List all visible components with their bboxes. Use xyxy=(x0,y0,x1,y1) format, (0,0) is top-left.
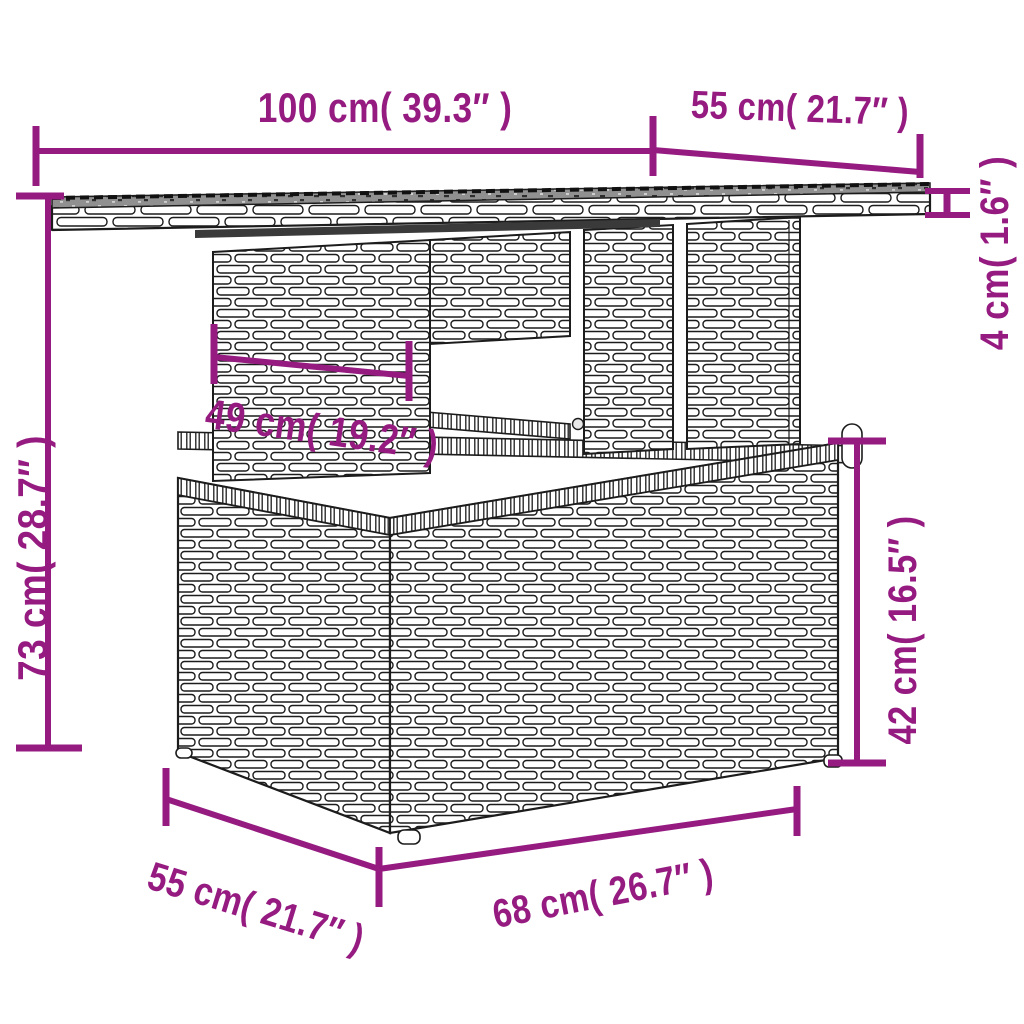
base-front-face xyxy=(390,443,838,833)
dim-label-total-height: 73 cm( 28.7″ ) xyxy=(12,435,54,681)
dim-line-top-depth xyxy=(653,134,920,178)
base-left-face xyxy=(178,478,390,833)
dimension-diagram: 100 cm( 39.3″ ) 55 cm( 21.7″ ) 4 cm( 1.6… xyxy=(0,0,1024,1024)
foot-back-left xyxy=(176,748,192,758)
foot-front-left xyxy=(398,830,420,844)
dim-label-top-width: 100 cm( 39.3″ ) xyxy=(258,87,513,129)
pedestal-right-column xyxy=(687,217,800,449)
pedestal-web-panel xyxy=(430,232,570,344)
base-box xyxy=(176,443,842,844)
dim-label-top-depth: 55 cm( 21.7″ ) xyxy=(690,86,909,133)
dim-line-top-thickness xyxy=(925,188,970,218)
stretcher-rail xyxy=(426,412,570,439)
dim-label-base-height: 42 cm( 16.5″ ) xyxy=(883,515,923,744)
pedestal-mid-column xyxy=(584,225,673,454)
rail-cap xyxy=(573,419,584,430)
dim-label-top-thickness: 4 cm( 1.6″ ) xyxy=(975,156,1015,350)
